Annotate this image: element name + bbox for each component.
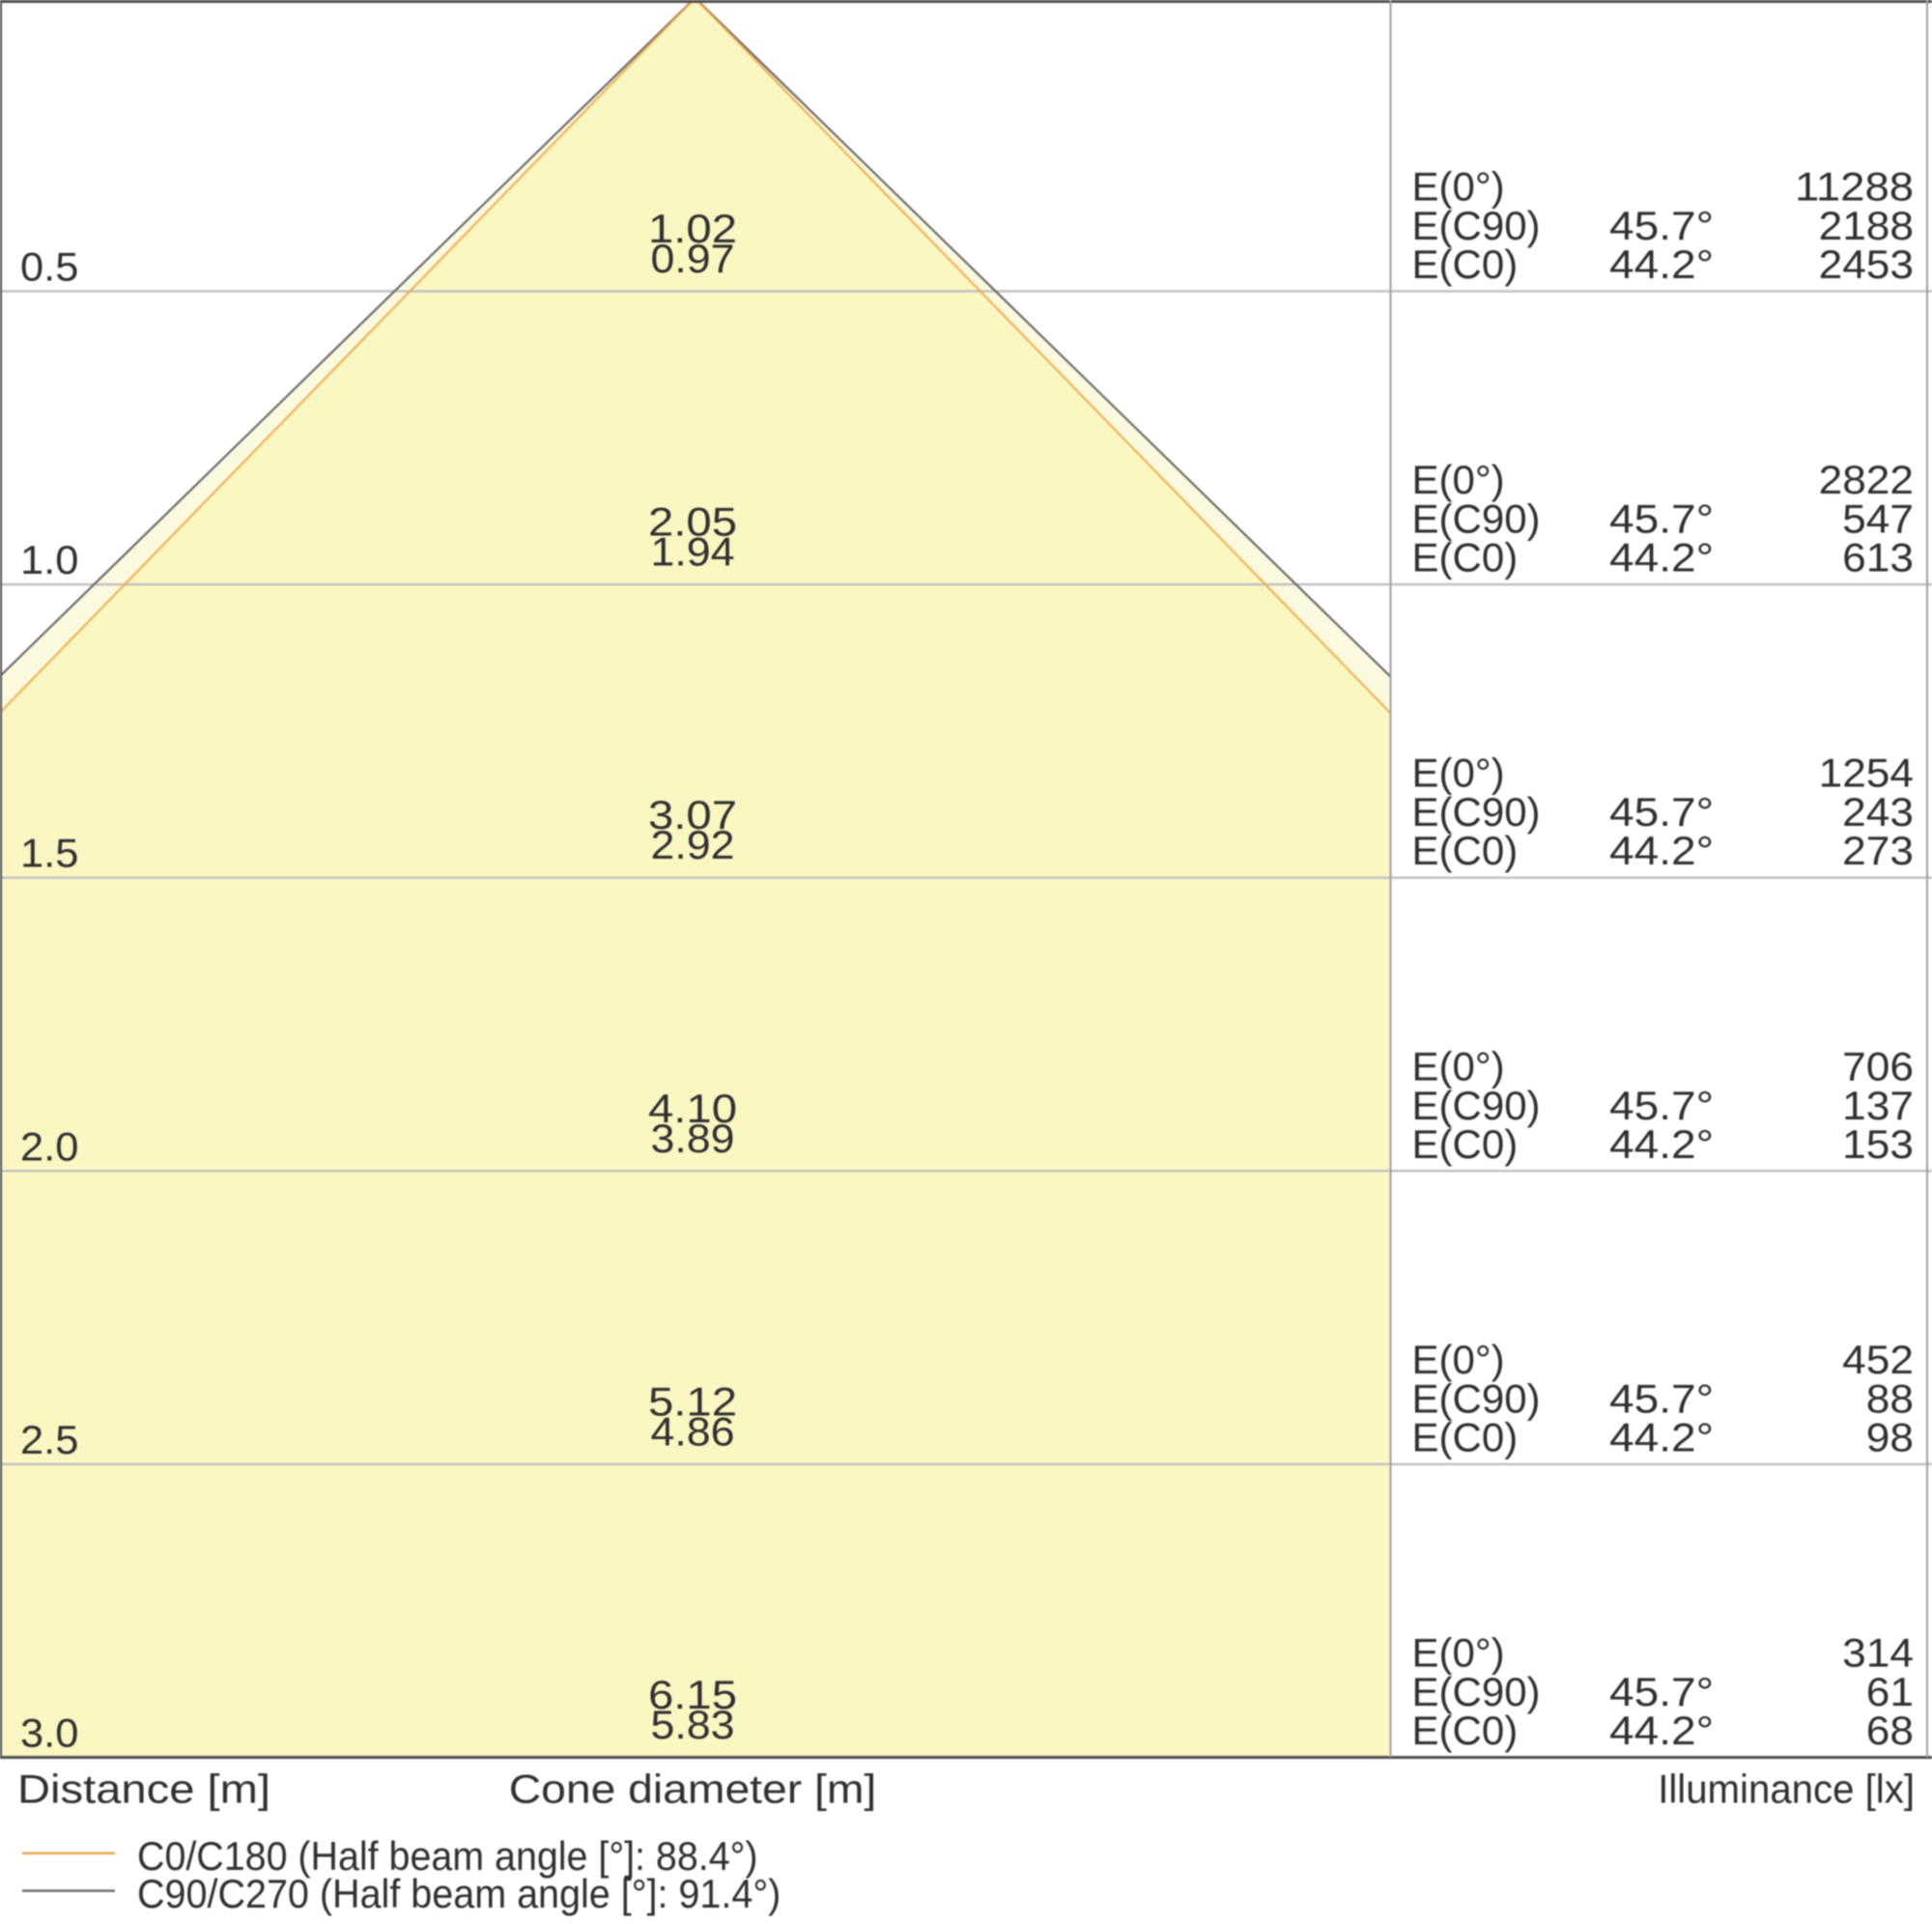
svg-text:44.2°: 44.2°	[1609, 1414, 1714, 1459]
svg-text:1.94: 1.94	[651, 529, 735, 575]
svg-text:44.2°: 44.2°	[1609, 1708, 1714, 1753]
svg-text:153: 153	[1842, 1121, 1914, 1167]
svg-text:2453: 2453	[1819, 241, 1914, 287]
svg-text:2.5: 2.5	[20, 1417, 78, 1462]
svg-text:3.89: 3.89	[651, 1116, 735, 1161]
svg-text:Illuminance [lx]: Illuminance [lx]	[1658, 1767, 1915, 1812]
svg-text:E(C0): E(C0)	[1412, 1121, 1519, 1167]
svg-text:3.0: 3.0	[20, 1711, 78, 1756]
svg-text:C90/C270 (Half beam angle [°]:: C90/C270 (Half beam angle [°]: 91.4°)	[137, 1871, 781, 1916]
svg-text:0.5: 0.5	[20, 244, 78, 290]
svg-text:44.2°: 44.2°	[1609, 828, 1714, 873]
svg-text:4.86: 4.86	[651, 1408, 735, 1454]
svg-text:44.2°: 44.2°	[1609, 241, 1714, 287]
svg-text:E(C0): E(C0)	[1412, 828, 1519, 873]
svg-text:1.0: 1.0	[20, 537, 78, 582]
svg-text:E(C0): E(C0)	[1412, 241, 1519, 287]
svg-text:E(C0): E(C0)	[1412, 535, 1519, 580]
svg-text:E(C0): E(C0)	[1412, 1414, 1519, 1459]
svg-text:0.97: 0.97	[651, 236, 735, 281]
svg-text:Distance [m]: Distance [m]	[17, 1767, 270, 1812]
svg-text:273: 273	[1842, 828, 1914, 873]
svg-text:44.2°: 44.2°	[1609, 535, 1714, 580]
svg-text:68: 68	[1866, 1708, 1914, 1753]
svg-text:98: 98	[1866, 1414, 1914, 1459]
svg-text:2.92: 2.92	[651, 822, 735, 867]
svg-text:Cone diameter [m]: Cone diameter [m]	[509, 1767, 877, 1812]
svg-text:2.0: 2.0	[20, 1123, 78, 1169]
svg-text:5.83: 5.83	[651, 1702, 735, 1747]
svg-text:1.5: 1.5	[20, 831, 78, 876]
svg-text:613: 613	[1842, 535, 1914, 580]
svg-text:E(C0): E(C0)	[1412, 1708, 1519, 1753]
svg-text:44.2°: 44.2°	[1609, 1121, 1714, 1167]
